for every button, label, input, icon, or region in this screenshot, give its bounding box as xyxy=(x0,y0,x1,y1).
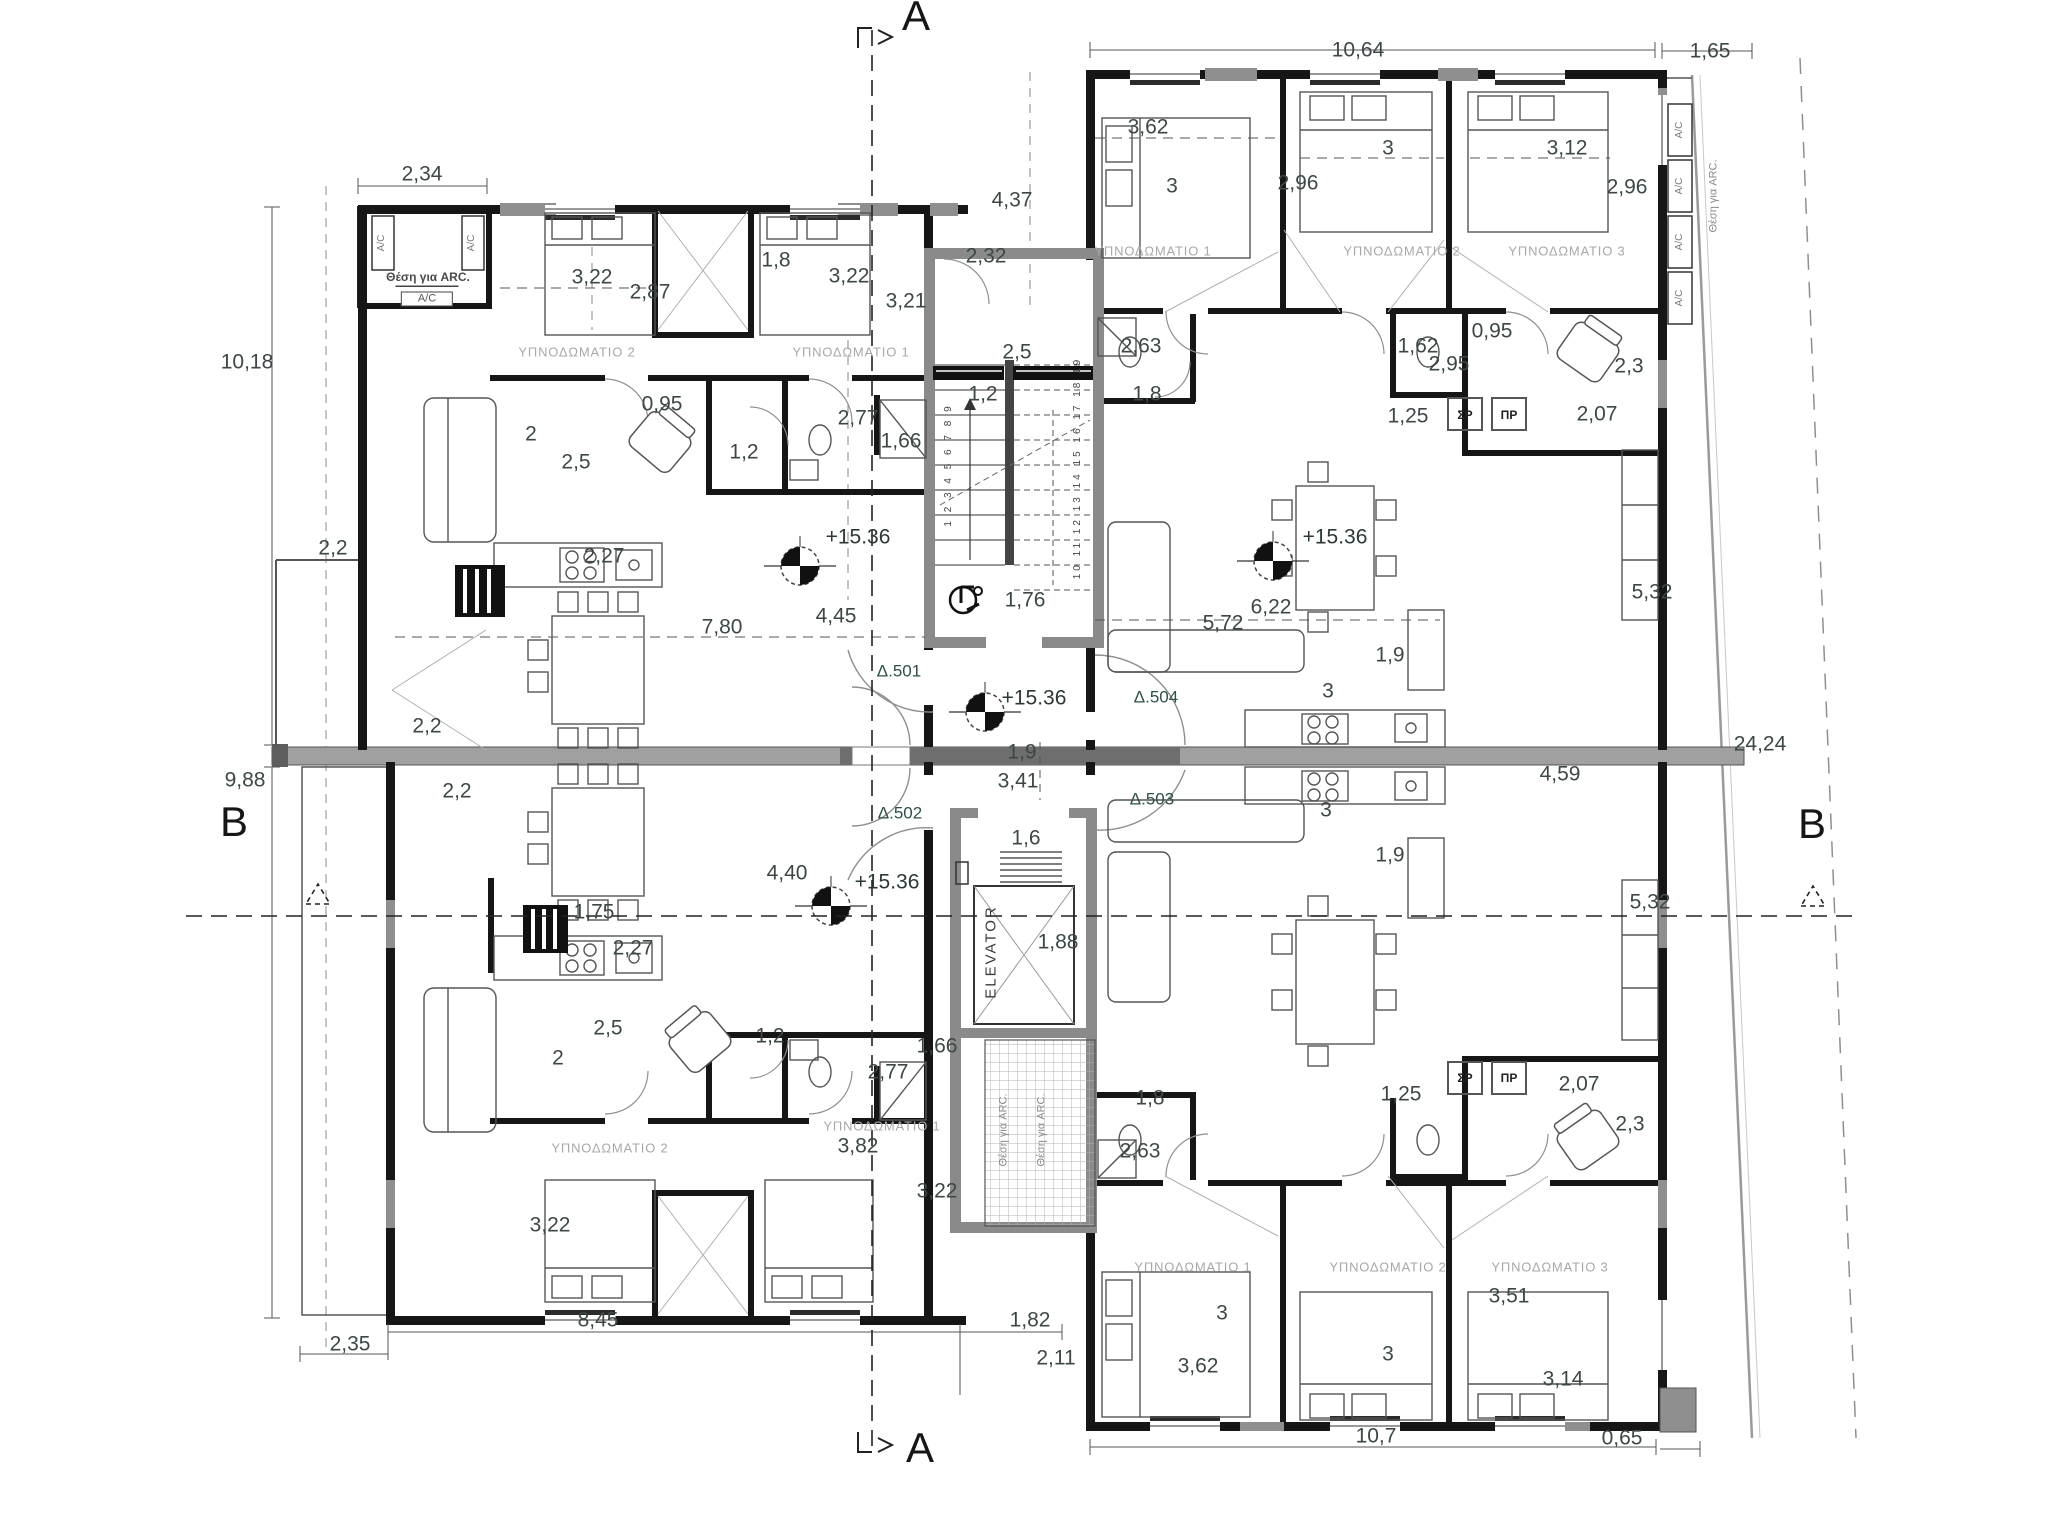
stair-core xyxy=(924,248,1104,648)
balcony-slab xyxy=(272,744,1744,767)
floor-plan-drawing xyxy=(0,0,2048,1536)
floor-plan-canvas: AABB10,641,652,3410,189,882,358,451,822,… xyxy=(0,0,2048,1536)
wheelchair-icon xyxy=(950,587,982,613)
ac-units-right xyxy=(1668,104,1692,324)
service-shaft-hatched xyxy=(985,1040,1095,1226)
ac-balcony-top-left xyxy=(358,207,490,307)
walls-apartment-503 xyxy=(1086,762,1667,1431)
walls-apartment-504 xyxy=(1086,70,1667,750)
